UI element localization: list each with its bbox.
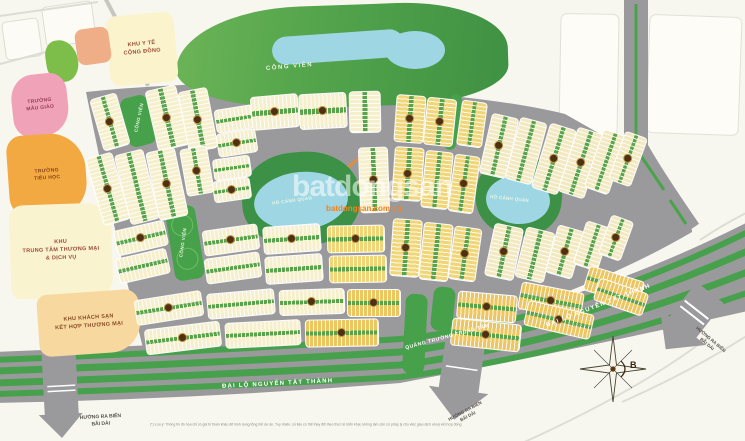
zone-commercial-center: KHU TRUNG TÂM THƯƠNG MẠI & DỊCH VỤ: [8, 202, 113, 300]
block-marker-icon: [135, 232, 146, 243]
housing-block: [280, 289, 345, 315]
square-park-strip: [402, 293, 428, 374]
housing-block: [419, 223, 453, 282]
housing-block: [299, 93, 347, 129]
block-marker-icon: [287, 234, 297, 244]
park-lake: [385, 31, 445, 69]
block-marker-icon: [337, 328, 346, 337]
block-marker-icon: [482, 302, 492, 312]
block-marker-icon: [231, 137, 241, 147]
block-marker-icon: [104, 116, 115, 127]
block-marker-icon: [458, 178, 468, 188]
block-marker-icon: [493, 140, 504, 151]
block-marker-icon: [575, 157, 586, 168]
block-marker-icon: [351, 234, 360, 243]
zone-healthcare: KHU Y TẾ CỘNG ĐỒNG: [105, 11, 179, 87]
block-marker-icon: [161, 178, 172, 189]
block-marker-icon: [225, 234, 235, 244]
zone-mixed-small: [74, 26, 113, 66]
block-marker-icon: [559, 246, 570, 257]
beach-direction-left: HƯỚNG RA BIỂN BÃI DÀI: [80, 413, 122, 429]
block-marker-icon: [548, 153, 559, 164]
housing-block: [348, 290, 400, 316]
housing-block: [265, 254, 323, 284]
block-marker-icon: [102, 183, 113, 194]
block-marker-icon: [226, 184, 236, 194]
block-marker-icon: [369, 175, 378, 184]
housing-block: [225, 320, 300, 348]
block-marker-icon: [481, 330, 491, 340]
housing-block: [306, 319, 378, 346]
block-marker-icon: [403, 169, 413, 179]
housing-block: [392, 147, 424, 201]
north-label: B: [630, 360, 637, 370]
housing-block: [359, 148, 389, 213]
housing-block: [394, 95, 425, 143]
housing-block: [390, 219, 422, 277]
housing-block: [328, 226, 384, 253]
block-marker-icon: [622, 153, 634, 165]
housing-block: [251, 94, 300, 130]
block-marker-icon: [369, 298, 378, 307]
block-marker-icon: [307, 297, 316, 306]
block-marker-icon: [270, 107, 280, 117]
block-marker-icon: [163, 302, 173, 312]
housing-block: [424, 98, 457, 147]
footnote: (*) Lưu ý: Thông tin đồ họa chỉ có giá t…: [150, 423, 462, 426]
zone-hotel-commercial: KHU KHÁCH SẠN KẾT HỢP THƯƠNG MẠI: [36, 289, 142, 358]
housing-block: [330, 256, 386, 283]
block-marker-icon: [161, 112, 172, 123]
block-marker-icon: [318, 106, 327, 115]
housing-block: [457, 292, 517, 323]
block-marker-icon: [405, 114, 415, 124]
block-marker-icon: [498, 246, 509, 257]
housing-block: [350, 92, 381, 133]
block-marker-icon: [610, 232, 622, 244]
housing-block: [263, 224, 321, 254]
block-marker-icon: [401, 243, 411, 253]
block-marker-icon: [191, 165, 201, 175]
block-marker-icon: [192, 114, 203, 125]
block-marker-icon: [459, 248, 469, 258]
block-marker-icon: [435, 117, 445, 127]
master-plan-map: CÔNG VIÊN CÔNG VIÊN CÔNG VIÊN HỒ CẢNH QU…: [0, 0, 745, 441]
block-marker-icon: [177, 333, 187, 343]
